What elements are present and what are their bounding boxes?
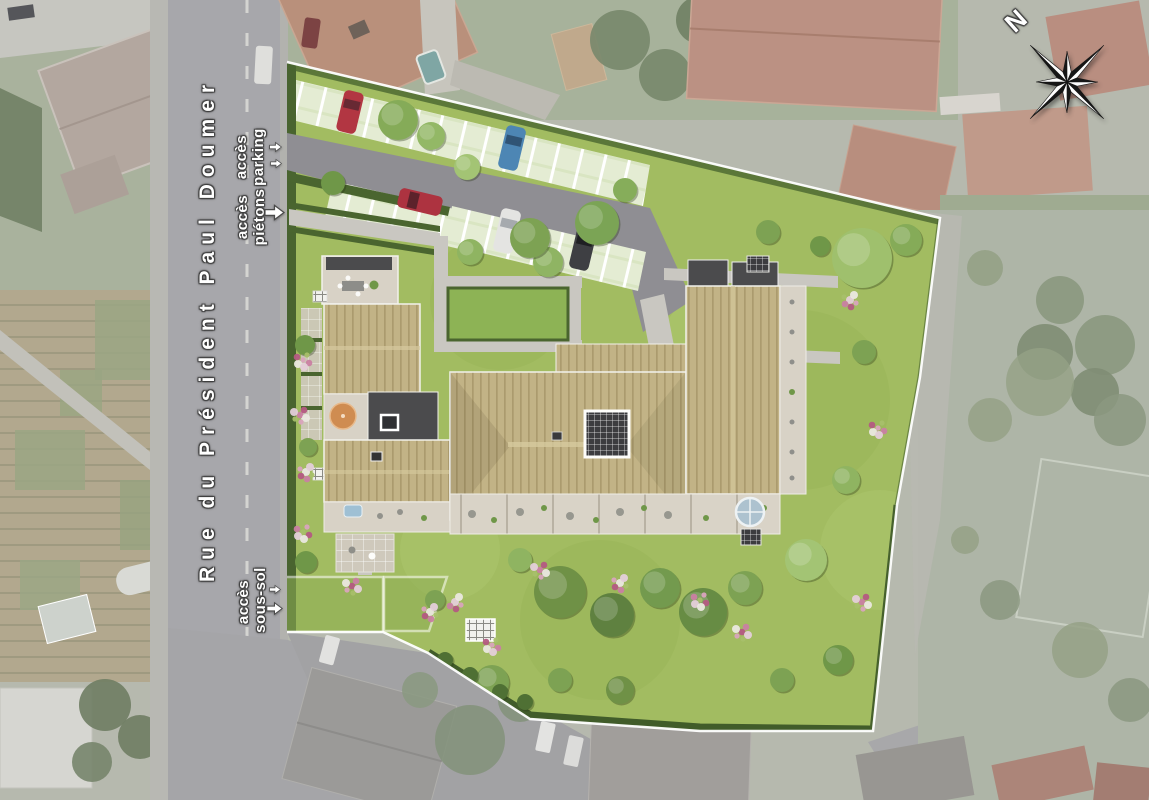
parking-access-arrow-2 [270, 158, 282, 169]
access-pietons-label-line1: accès [234, 172, 250, 262]
roof-slate-mid [368, 392, 438, 440]
parking-access-arrow-1 [269, 141, 282, 153]
soussol-access-arrow-2 [266, 601, 283, 616]
access-soussol-label-line1: accès [235, 557, 251, 647]
access-soussol-label-line2: sous-sol [252, 555, 268, 645]
street-name-label: Rue du Président Paul Doumer [196, 168, 222, 582]
parked-van [254, 46, 273, 85]
ground-patio [336, 534, 394, 572]
site-plan-canvas: Rue du Président Paul Doumer accès parki… [0, 0, 1149, 800]
skylight [381, 415, 398, 430]
pietons-access-arrow [264, 203, 285, 222]
hedged-lawn-panel [448, 288, 568, 340]
central-courtyard [585, 411, 629, 457]
south-terraces [450, 494, 780, 534]
soussol-access-arrow-1 [269, 584, 281, 595]
terraces-left-south [324, 502, 450, 532]
roof-vent-grid [747, 256, 769, 272]
hot-tub [344, 505, 362, 517]
garden-trellis [466, 619, 495, 641]
site-plan-map [0, 0, 1149, 800]
ground-vent-grid [741, 529, 761, 545]
garden-plot-1 [284, 577, 383, 632]
surroundings-right-field [905, 210, 1149, 800]
